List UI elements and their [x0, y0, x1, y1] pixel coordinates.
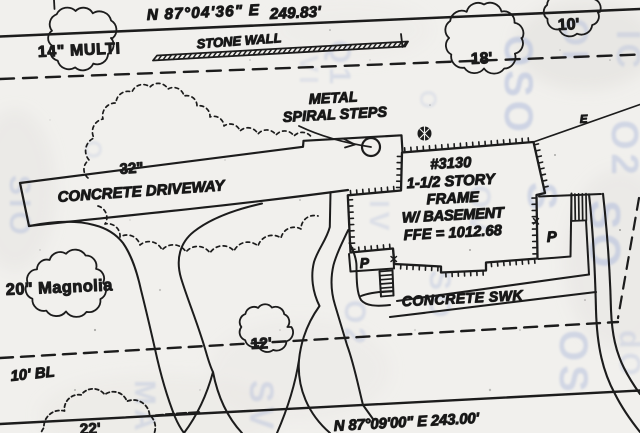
svg-text:O2: O2 — [603, 120, 640, 179]
svg-text:E: E — [580, 114, 589, 126]
svg-text:10': 10' — [557, 16, 579, 34]
svg-text:P: P — [546, 228, 558, 246]
svg-text:O: O — [414, 90, 441, 113]
svg-text:METAL: METAL — [308, 89, 358, 108]
svg-text:22': 22' — [79, 420, 101, 433]
svg-text:IV: IV — [364, 200, 395, 234]
svg-text:P: P — [359, 254, 370, 271]
svg-text:SV1: SV1 — [242, 380, 280, 433]
svg-text:VI: VI — [294, 55, 324, 88]
svg-text:IC: IC — [609, 30, 640, 72]
svg-text:249.83': 249.83' — [268, 4, 322, 23]
svg-text:18': 18' — [470, 50, 492, 68]
svg-text:14" MULTI: 14" MULTI — [37, 40, 121, 61]
svg-text:OS: OS — [551, 330, 595, 396]
svg-text:OSO: OSO — [496, 35, 540, 136]
svg-text:O: O — [79, 140, 106, 163]
svg-text:FRAME: FRAME — [426, 190, 480, 209]
svg-text:O2: O2 — [338, 300, 371, 348]
svg-text:#3130: #3130 — [430, 155, 473, 173]
